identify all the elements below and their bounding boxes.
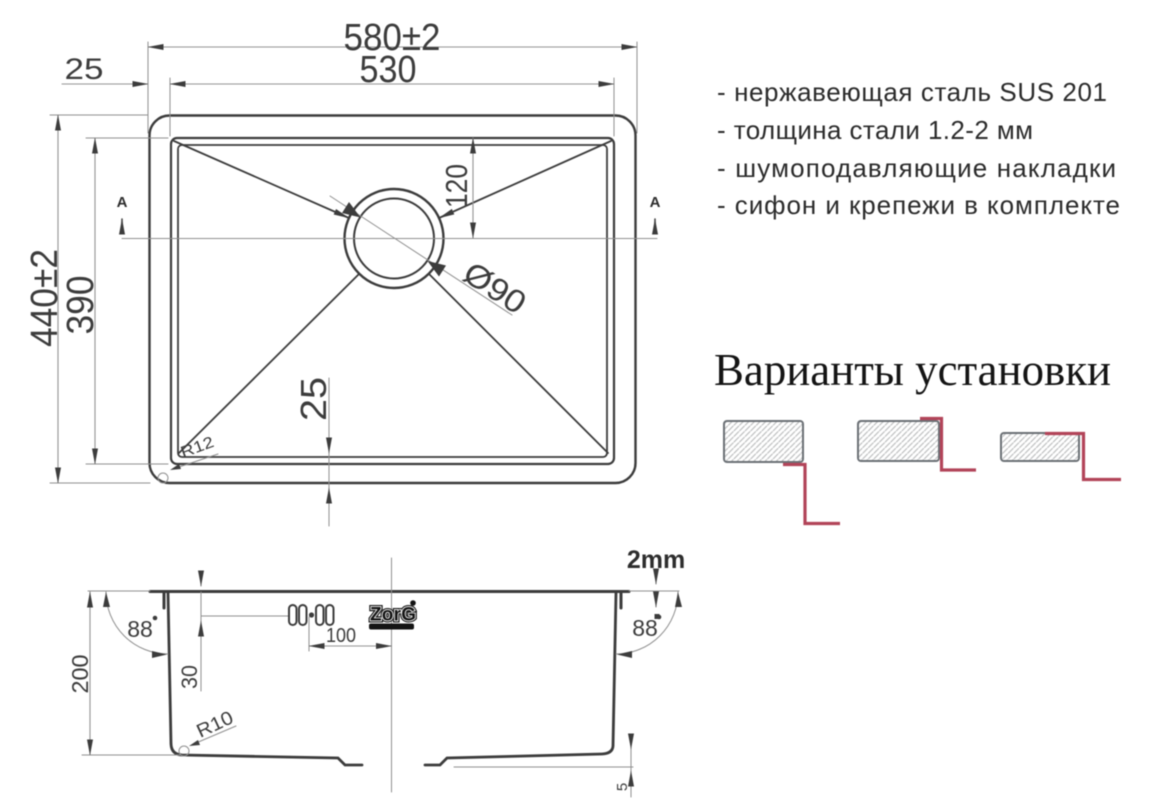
svg-text:ZorG: ZorG (370, 605, 416, 626)
svg-text:Варианты установки: Варианты установки (714, 344, 1111, 395)
svg-text:- нержавеющая сталь SUS 201: - нержавеющая сталь SUS 201 (717, 77, 1107, 107)
svg-text:- толщина стали 1.2-2 мм: - толщина стали 1.2-2 мм (717, 115, 1033, 145)
svg-text:390: 390 (60, 276, 102, 335)
svg-text:- сифон и крепежи в комплекте: - сифон и крепежи в комплекте (717, 190, 1120, 220)
svg-text:30: 30 (177, 665, 202, 689)
svg-text:200: 200 (67, 655, 93, 694)
svg-text:100: 100 (326, 625, 356, 647)
svg-text:- шумоподавляющие накладки: - шумоподавляющие накладки (717, 153, 1116, 183)
svg-text:120: 120 (439, 164, 474, 208)
svg-text:5: 5 (614, 783, 631, 791)
svg-text:530: 530 (360, 49, 417, 91)
svg-text:88: 88 (127, 616, 153, 642)
svg-text:25: 25 (293, 377, 334, 421)
svg-text:A: A (117, 194, 128, 211)
svg-text:25: 25 (65, 53, 104, 86)
svg-text:A: A (650, 194, 661, 211)
svg-text:88: 88 (632, 615, 658, 641)
svg-text:2mm: 2mm (627, 546, 685, 574)
